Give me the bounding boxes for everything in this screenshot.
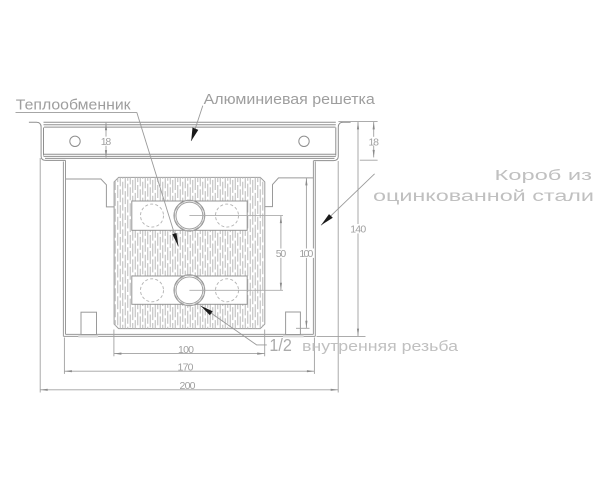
- svg-text:Короб из: Короб из: [495, 168, 593, 184]
- svg-text:50: 50: [276, 248, 287, 260]
- svg-text:1/2: 1/2: [269, 335, 292, 355]
- svg-text:100: 100: [299, 248, 313, 260]
- svg-text:оцинкованной стали: оцинкованной стали: [373, 188, 594, 205]
- svg-text:18: 18: [101, 136, 112, 148]
- svg-text:внутренняя резьба: внутренняя резьба: [302, 339, 459, 355]
- svg-text:200: 200: [180, 380, 196, 392]
- svg-text:140: 140: [350, 224, 366, 236]
- svg-text:170: 170: [178, 362, 194, 374]
- svg-text:18: 18: [368, 136, 379, 148]
- svg-text:100: 100: [178, 344, 194, 356]
- svg-text:Алюминиевая решетка: Алюминиевая решетка: [204, 92, 375, 108]
- svg-text:Теплообменник: Теплообменник: [16, 98, 132, 114]
